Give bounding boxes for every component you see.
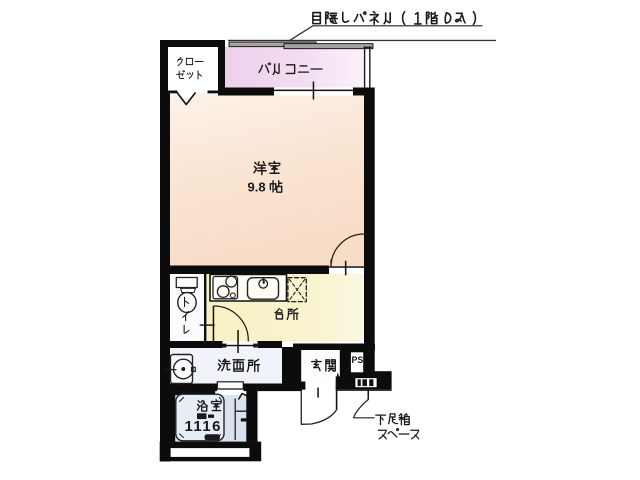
svg-text:1116: 1116 (185, 418, 222, 435)
svg-text:9.8: 9.8 (248, 179, 266, 194)
svg-text:PS: PS (352, 355, 364, 365)
